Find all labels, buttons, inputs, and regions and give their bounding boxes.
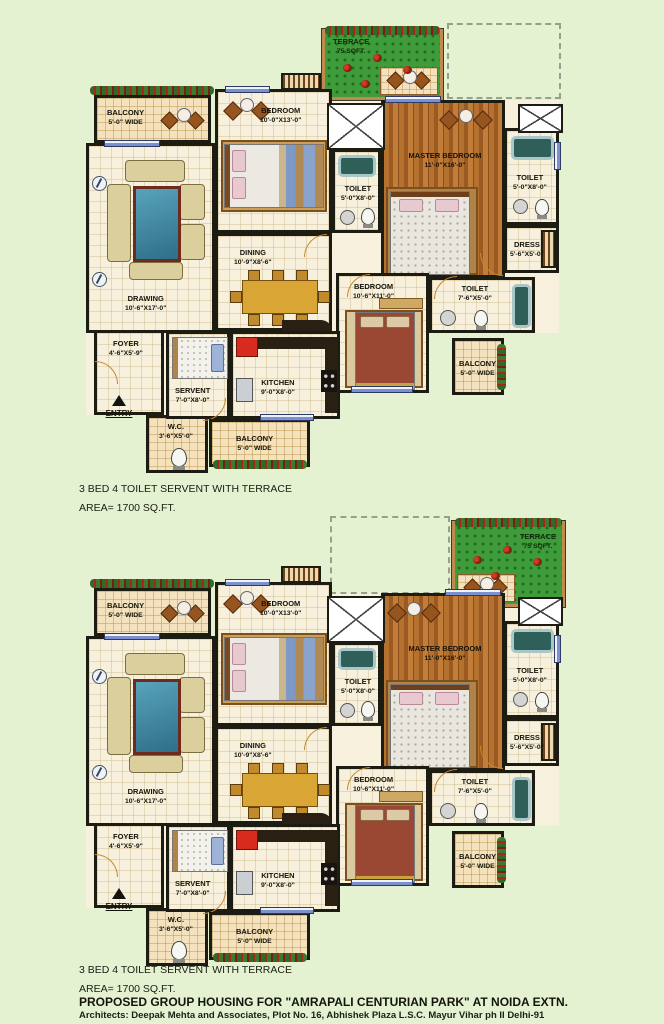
bed [172,337,228,379]
dining-table [242,280,318,314]
room-name: BEDROOM [260,599,301,609]
room-dim: 10'-6"X11'-0" [353,292,394,301]
terrace: TERRACE 75 SQFT. [322,29,443,100]
round-table [407,602,421,616]
sofa [179,184,205,220]
room-name: KITCHEN [261,871,295,881]
toilet-label: TOILET 7'-6"X5'-0" [458,284,492,303]
room-dim: 5'-0" WIDE [107,611,144,620]
flower-box [325,26,440,35]
toilet-fixture [474,803,488,820]
room-name: TOILET [513,173,547,183]
toilet-label: TOILET 5'-0"X8'-0" [341,184,375,203]
drawing-label: DRAWING 10'-6"X17'-0" [125,294,166,313]
toilet-label: TOILET 7'-6"X5'-0" [458,777,492,796]
entry-arrow-icon [112,395,126,406]
headboard [173,338,178,378]
ceiling-fan-icon [92,176,107,191]
wc: W.C. 3'-6"X5'-0" [146,908,208,966]
sofa [125,653,185,675]
room-dim: 10'-6"X17'-0" [125,797,166,806]
caption-area: AREA= 1700 SQ.FT. [79,502,292,514]
window [445,589,501,596]
sofa [129,262,183,280]
wardrobe-hatch [281,566,321,583]
servent-label: SERVENT 7'-0"X8'-0" [175,879,210,898]
wardrobe-hatch [281,73,321,90]
dress-label: DRESS 5'-6"X5'-0" [510,733,544,752]
room-dim: 5'-6"X5'-0" [510,743,544,752]
washbasin [513,199,528,214]
room-dim: 10'-0"X13'-0" [260,609,301,618]
floor-plan-sheet: TERRACE 75 SQFT. BALCONY 5'-0" WIDE [0,0,664,1024]
flower-icon [361,80,370,88]
terrace-label: TERRACE 75 SQFT. [333,37,369,56]
pillow [386,316,410,328]
sofa [125,160,185,182]
drawing-room: DRAWING 10'-6"X17'-0" [86,636,215,826]
servent-room: SERVENT 7'-0"X8'-0" [166,331,230,419]
servent-room: SERVENT 7'-0"X8'-0" [166,824,230,912]
foyer-label: FOYER 4'-6"X5'-9" [109,339,143,358]
flower-icon [491,572,500,580]
dining-label: DINING 10'-9"X8'-6" [234,741,272,760]
flower-icon [373,54,382,62]
dress-label: DRESS 5'-6"X5'-0" [510,240,544,259]
room-name: BALCONY [236,434,273,444]
chair [386,71,404,89]
bed [224,144,324,208]
toilet-label: TOILET 5'-0"X8'-0" [513,173,547,192]
round-table [459,109,473,123]
toilet-fixture [361,208,375,225]
plan-caption-1: 3 BED 4 TOILET SERVENT WITH TERRACE AREA… [79,483,292,521]
floor-plan-unit-2: TERRACE 75 SQFT. BALCONY 5'-0" WIDE [78,507,566,969]
chair [160,111,178,129]
room-name: FOYER [109,339,143,349]
pillow [386,809,410,821]
entry-arrow-icon [112,888,126,899]
master-bedroom: MASTER BEDROOM 11'-0"X16'-0" [381,593,505,771]
door-arc [480,253,503,276]
room-dim: 5'-0"X8'-0" [341,194,375,203]
sofa [129,755,183,773]
sofa [179,224,205,260]
architects-line: Architects: Deepak Mehta and Associates,… [79,1010,544,1021]
window [351,386,413,393]
room-dim: 4'-6"X5'-9" [109,842,143,851]
entry-label: ENTRY [102,902,136,911]
bedroom-top: BEDROOM 10'-0"X13'-0" [215,89,332,233]
room-dim: 5'-0" WIDE [236,444,273,453]
room-dim: 5'-0"X8'-0" [341,687,375,696]
balcony-label: BALCONY 5'-0" WIDE [459,852,496,871]
sofa [107,184,131,262]
toilet-fixture [171,941,187,960]
bedroom-top: BEDROOM 10'-0"X13'-0" [215,582,332,726]
drawing-room: DRAWING 10'-6"X17'-0" [86,143,215,333]
dining-label: DINING 10'-9"X8'-6" [234,248,272,267]
flower-box [90,86,214,95]
round-table [177,108,191,122]
foyer-label: FOYER 4'-6"X5'-9" [109,832,143,851]
flower-box [497,344,506,390]
floor-plan: TERRACE 75 SQFT. BALCONY 5'-0" WIDE [78,14,566,476]
room-dim: 9'-0"X8'-0" [261,388,295,397]
pillow [399,692,423,705]
wc-label: W.C. 3'-6"X5'-0" [159,915,193,934]
room-dim: 5'-6"X5'-0" [510,250,544,259]
washbasin [513,692,528,707]
fridge [236,830,258,850]
bedroom-right: BEDROOM 10'-6"X11'-0" [336,766,429,886]
pillow [435,692,459,705]
headboard [391,192,469,197]
terrace-label: TERRACE 75 SQFT. [520,532,556,551]
window [225,579,270,586]
toilet-mid: TOILET 5'-0"X8'-0" [332,642,381,726]
room-name: BEDROOM [260,106,301,116]
master-sitting [440,105,498,139]
room-dim: 5'-0" WIDE [236,937,273,946]
bedroom-label: BEDROOM 10'-0"X13'-0" [260,599,301,618]
sofa [179,677,205,713]
balcony-top-left: BALCONY 5'-0" WIDE [94,95,211,143]
wc-label: W.C. 3'-6"X5'-0" [159,422,193,441]
round-table [177,601,191,615]
shaft [327,103,385,150]
flower-box [455,518,562,527]
room-dim: 3'-6"X5'-0" [159,432,193,441]
flower-icon [503,546,512,554]
toilet-fixture [535,199,549,216]
room-name: BEDROOM [353,775,394,785]
room-dim: 5'-0" WIDE [107,118,144,127]
bedroom-label: BEDROOM 10'-0"X13'-0" [260,106,301,125]
wc: W.C. 3'-6"X5'-0" [146,415,208,473]
room-dim: 5'-0" WIDE [459,862,496,871]
balcony-label: BALCONY 5'-0" WIDE [107,108,144,127]
door-arc [304,727,327,750]
room-name: TOILET [458,777,492,787]
room-dim: 4'-6"X5'-9" [109,349,143,358]
room-name: W.C. [159,915,193,925]
bed [390,191,470,275]
chair [473,110,493,130]
room-name: TOILET [513,666,547,676]
flower-box [213,953,307,962]
chair [387,603,407,623]
toilet-fixture [474,310,488,327]
balcony-top-left: BALCONY 5'-0" WIDE [94,588,211,636]
room-name: MASTER BEDROOM [408,151,482,161]
dining-chair [230,784,242,796]
shaft [327,596,385,643]
room-name: TERRACE [333,37,369,47]
room-dim: 5'-0"X8'-0" [513,676,547,685]
window [104,633,160,640]
toilet-top-right: TOILET 5'-0"X8'-0" [504,621,559,718]
shaft [518,104,563,133]
master-sitting [388,598,446,632]
room-name: FOYER [109,832,143,842]
project-title: PROPOSED GROUP HOUSING FOR "AMRAPALI CEN… [79,995,568,1009]
room-name: DRESS [510,240,544,250]
balcony-label: BALCONY 5'-0" WIDE [459,359,496,378]
entry: ENTRY [102,395,136,418]
toilet-label: TOILET 5'-0"X8'-0" [341,677,375,696]
room-dim: 11'-0"X16'-0" [408,161,482,170]
floor-plan: TERRACE 75 SQFT. BALCONY 5'-0" WIDE [78,507,566,969]
bathtub [512,284,531,328]
ceiling-fan-icon [92,272,107,287]
room-name: DRAWING [125,787,166,797]
stove [321,370,337,392]
window [104,140,160,147]
kitchen-counter [282,320,332,331]
ceiling-fan-icon [92,669,107,684]
room-name: TOILET [341,184,375,194]
sink [236,871,253,895]
room-name: KITCHEN [261,378,295,388]
master-bedroom: MASTER BEDROOM 11'-0"X16'-0" [381,100,505,278]
entry-label: ENTRY [102,409,136,418]
room-name: BALCONY [459,852,496,862]
window [554,142,561,170]
pillow [232,177,246,199]
room-name: MASTER BEDROOM [408,644,482,654]
room-dim: 11'-0"X16'-0" [408,654,482,663]
kitchen-counter [282,813,332,824]
pillow [232,150,246,172]
kitchen: KITCHEN 9'-0"X8'-0" [230,824,340,912]
pillow [399,199,423,212]
chair [160,604,178,622]
kitchen-counter [256,337,338,349]
bedroom-label: BEDROOM 10'-6"X11'-0" [353,282,394,301]
toilet-label: TOILET 5'-0"X8'-0" [513,666,547,685]
room-name: DINING [234,741,272,751]
entry: ENTRY [102,888,136,911]
room-name: TOILET [458,284,492,294]
door-arc [434,769,457,792]
floor-plan-unit-1: TERRACE 75 SQFT. BALCONY 5'-0" WIDE [78,14,566,476]
room-name: SERVENT [175,386,210,396]
room-dim: 10'-6"X17'-0" [125,304,166,313]
toilet-fixture [361,701,375,718]
balcony-label: BALCONY 5'-0" WIDE [236,434,273,453]
washbasin [340,703,355,718]
dining-table [242,773,318,807]
room-name: BALCONY [236,927,273,937]
toilet-top-right: TOILET 5'-0"X8'-0" [504,128,559,225]
room-dim: 10'-9"X8'-6" [234,751,272,760]
room-name: DRESS [510,733,544,743]
sofa [179,717,205,753]
caption-type: 3 BED 4 TOILET SERVENT WITH TERRACE [79,483,292,495]
flower-icon [473,556,482,564]
room-dim: 5'-0"X8'-0" [513,183,547,192]
room-dim: 3'-6"X5'-0" [159,925,193,934]
window [554,635,561,663]
kitchen-label: KITCHEN 9'-0"X8'-0" [261,378,295,397]
flower-box [497,837,506,883]
chair [421,603,441,623]
dining: DINING 10'-9"X8'-6" [215,233,332,331]
door-arc [95,361,118,384]
room-dim: 75 SQFT. [333,47,369,56]
room-name: TOILET [341,677,375,687]
room-dim: 10'-0"X13'-0" [260,116,301,125]
pillow [211,837,224,865]
room-dim: 75 SQFT. [520,542,556,551]
dining-chair [230,291,242,303]
toilet-fixture [171,448,187,467]
dining-chair [318,784,330,796]
balcony-label: BALCONY 5'-0" WIDE [236,927,273,946]
pillow [360,316,384,328]
room-dim: 7'-6"X5'-0" [458,294,492,303]
room-name: W.C. [159,422,193,432]
drawing-label: DRAWING 10'-6"X17'-0" [125,787,166,806]
toilet-mid: TOILET 5'-0"X8'-0" [332,149,381,233]
pillow [435,199,459,212]
room-name: TERRACE [520,532,556,542]
servent-label: SERVENT 7'-0"X8'-0" [175,386,210,405]
pillow [360,809,384,821]
washbasin [440,803,456,819]
room-dim: 7'-6"X5'-0" [458,787,492,796]
bathtub [511,136,554,160]
door-arc [480,746,503,769]
headboard [173,831,178,871]
headboard [391,685,469,690]
window [260,414,314,421]
caption-type: 3 BED 4 TOILET SERVENT WITH TERRACE [79,964,292,976]
bathtub [512,777,531,821]
flower-box [90,579,214,588]
stove [321,863,337,885]
window [260,907,314,914]
bathtub [338,155,376,177]
flower-icon [343,64,352,72]
bathtub [511,629,554,653]
open-terrace-dashed-outline [330,516,450,594]
room-dim: 10'-9"X8'-6" [234,258,272,267]
open-terrace-dashed-outline [447,23,561,99]
room-name: BALCONY [107,108,144,118]
toilet-fixture [535,692,549,709]
door-arc [304,234,327,257]
flower-icon [403,66,412,74]
dining-chair [248,807,260,819]
washbasin [340,210,355,225]
bathtub [338,648,376,670]
door-arc [434,276,457,299]
window [225,86,270,93]
kitchen-counter [256,830,338,842]
ceiling-fan-icon [92,765,107,780]
dining-chair [248,314,260,326]
toilet-right: TOILET 7'-6"X5'-0" [429,770,535,826]
room-dim: 5'-0" WIDE [459,369,496,378]
pillow [211,344,224,372]
washbasin [440,310,456,326]
kitchen-label: KITCHEN 9'-0"X8'-0" [261,871,295,890]
room-dim: 9'-0"X8'-0" [261,881,295,890]
room-name: SERVENT [175,879,210,889]
master-label: MASTER BEDROOM 11'-0"X16'-0" [408,644,482,663]
room-name: DRAWING [125,294,166,304]
window [351,879,413,886]
chair [439,110,459,130]
caption-area: AREA= 1700 SQ.FT. [79,983,292,995]
flower-icon [533,558,542,566]
sofa [107,677,131,755]
bed [355,805,415,883]
pillow [232,643,246,665]
dress: DRESS 5'-6"X5'-0" [504,225,559,273]
bed [224,637,324,701]
room-name: BALCONY [107,601,144,611]
carpet [133,679,181,755]
bed [172,830,228,872]
shaft [518,597,563,626]
room-dim: 7'-0"X8'-0" [175,889,210,898]
master-label: MASTER BEDROOM 11'-0"X16'-0" [408,151,482,170]
round-table [240,98,254,112]
kitchen: KITCHEN 9'-0"X8'-0" [230,331,340,419]
room-name: DINING [234,248,272,258]
pillow [232,670,246,692]
window [385,96,441,103]
dress: DRESS 5'-6"X5'-0" [504,718,559,766]
round-table [240,591,254,605]
toilet-right: TOILET 7'-6"X5'-0" [429,277,535,333]
carpet [133,186,181,262]
bed [355,312,415,390]
fridge [236,337,258,357]
room-dim: 10'-6"X11'-0" [353,785,394,794]
dining: DINING 10'-9"X8'-6" [215,726,332,824]
bedroom-label: BEDROOM 10'-6"X11'-0" [353,775,394,794]
balcony-label: BALCONY 5'-0" WIDE [107,601,144,620]
flower-box [213,460,307,469]
bed [390,684,470,768]
door-arc [95,854,118,877]
room-name: BALCONY [459,359,496,369]
bedroom-right: BEDROOM 10'-6"X11'-0" [336,273,429,393]
room-dim: 7'-0"X8'-0" [175,396,210,405]
sink [236,378,253,402]
dining-chair [318,291,330,303]
room-name: BEDROOM [353,282,394,292]
